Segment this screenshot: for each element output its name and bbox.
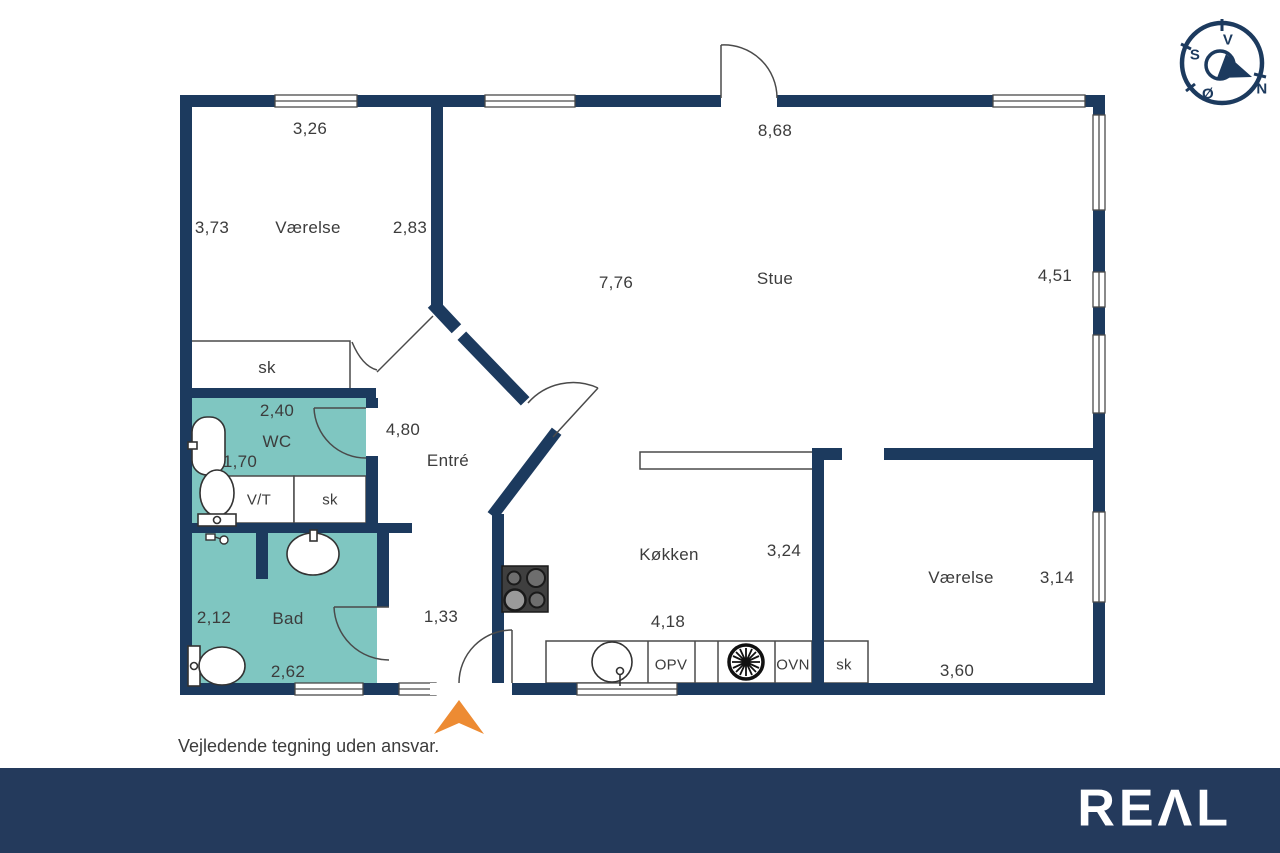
room-entre: Entré <box>427 451 469 471</box>
wc-sink <box>188 417 225 475</box>
appliance-ovn: OVN <box>776 657 809 674</box>
floorplan-drawing <box>0 0 1280 853</box>
dim-bad-bottom: 2,62 <box>271 662 305 682</box>
room-bad: Bad <box>272 609 303 629</box>
dim-vaerelse1-right: 2,83 <box>393 218 427 238</box>
dim-wc-top: 2,40 <box>260 401 294 421</box>
dim-koekken-right: 3,24 <box>767 541 801 561</box>
compass-needle <box>1217 54 1252 78</box>
dim-vaerelse2-right: 3,14 <box>1040 568 1074 588</box>
fan-icon <box>729 645 763 679</box>
disclaimer-text: Vejledende tegning uden ansvar. <box>178 736 439 757</box>
compass-letter-oe: Ø <box>1202 86 1214 103</box>
window-top-1 <box>275 95 357 107</box>
window-right-2 <box>1093 272 1105 307</box>
dim-stue-right: 4,51 <box>1038 266 1072 286</box>
window-top-3 <box>993 95 1085 107</box>
room-stue: Stue <box>757 269 793 289</box>
dim-vaerelse2-bottom: 3,60 <box>940 661 974 681</box>
footer-bar: REΛL <box>0 768 1280 853</box>
compass-letter-s: S <box>1190 47 1200 64</box>
dim-vaerelse1-top: 3,26 <box>293 119 327 139</box>
dim-koekken-bottom: 4,18 <box>651 612 685 632</box>
room-vaerelse2: Værelse <box>928 568 993 588</box>
window-bottom-1 <box>295 683 363 695</box>
bad-toilet <box>188 646 245 686</box>
entrance-arrow <box>434 700 484 734</box>
compass-letter-v: V <box>1223 32 1233 49</box>
closet-vt: V/T <box>247 492 271 509</box>
dim-entre: 4,80 <box>386 420 420 440</box>
closet-vaerelse1-sk: sk <box>258 358 276 378</box>
closet-koekken-sk: sk <box>836 657 852 674</box>
appliance-opv: OPV <box>655 657 688 674</box>
dim-wc-left: 1,70 <box>223 452 257 472</box>
window-top-2 <box>485 95 575 107</box>
room-vaerelse1: Værelse <box>275 218 340 238</box>
room-wc: WC <box>263 432 292 452</box>
window-right-3 <box>1093 335 1105 413</box>
wc-toilet <box>198 470 236 526</box>
dim-vaerelse1-left: 3,73 <box>195 218 229 238</box>
window-bottom-3 <box>577 683 677 695</box>
windows <box>275 95 1105 695</box>
closet-wc-sk: sk <box>322 492 338 509</box>
window-right-4 <box>1093 512 1105 602</box>
dim-entre-width: 1,33 <box>424 607 458 627</box>
dim-stue-left: 7,76 <box>599 273 633 293</box>
compass-letter-n: N <box>1256 81 1267 98</box>
dim-stue-top: 8,68 <box>758 121 792 141</box>
floorplan-page: 3,26Værelse3,732,83sk8,68Stue7,764,512,4… <box>0 0 1280 853</box>
real-logo: REΛL <box>1077 778 1232 838</box>
window-right-1 <box>1093 115 1105 210</box>
stove <box>502 566 548 612</box>
room-koekken: Køkken <box>639 545 698 565</box>
dim-bad-left: 2,12 <box>197 608 231 628</box>
